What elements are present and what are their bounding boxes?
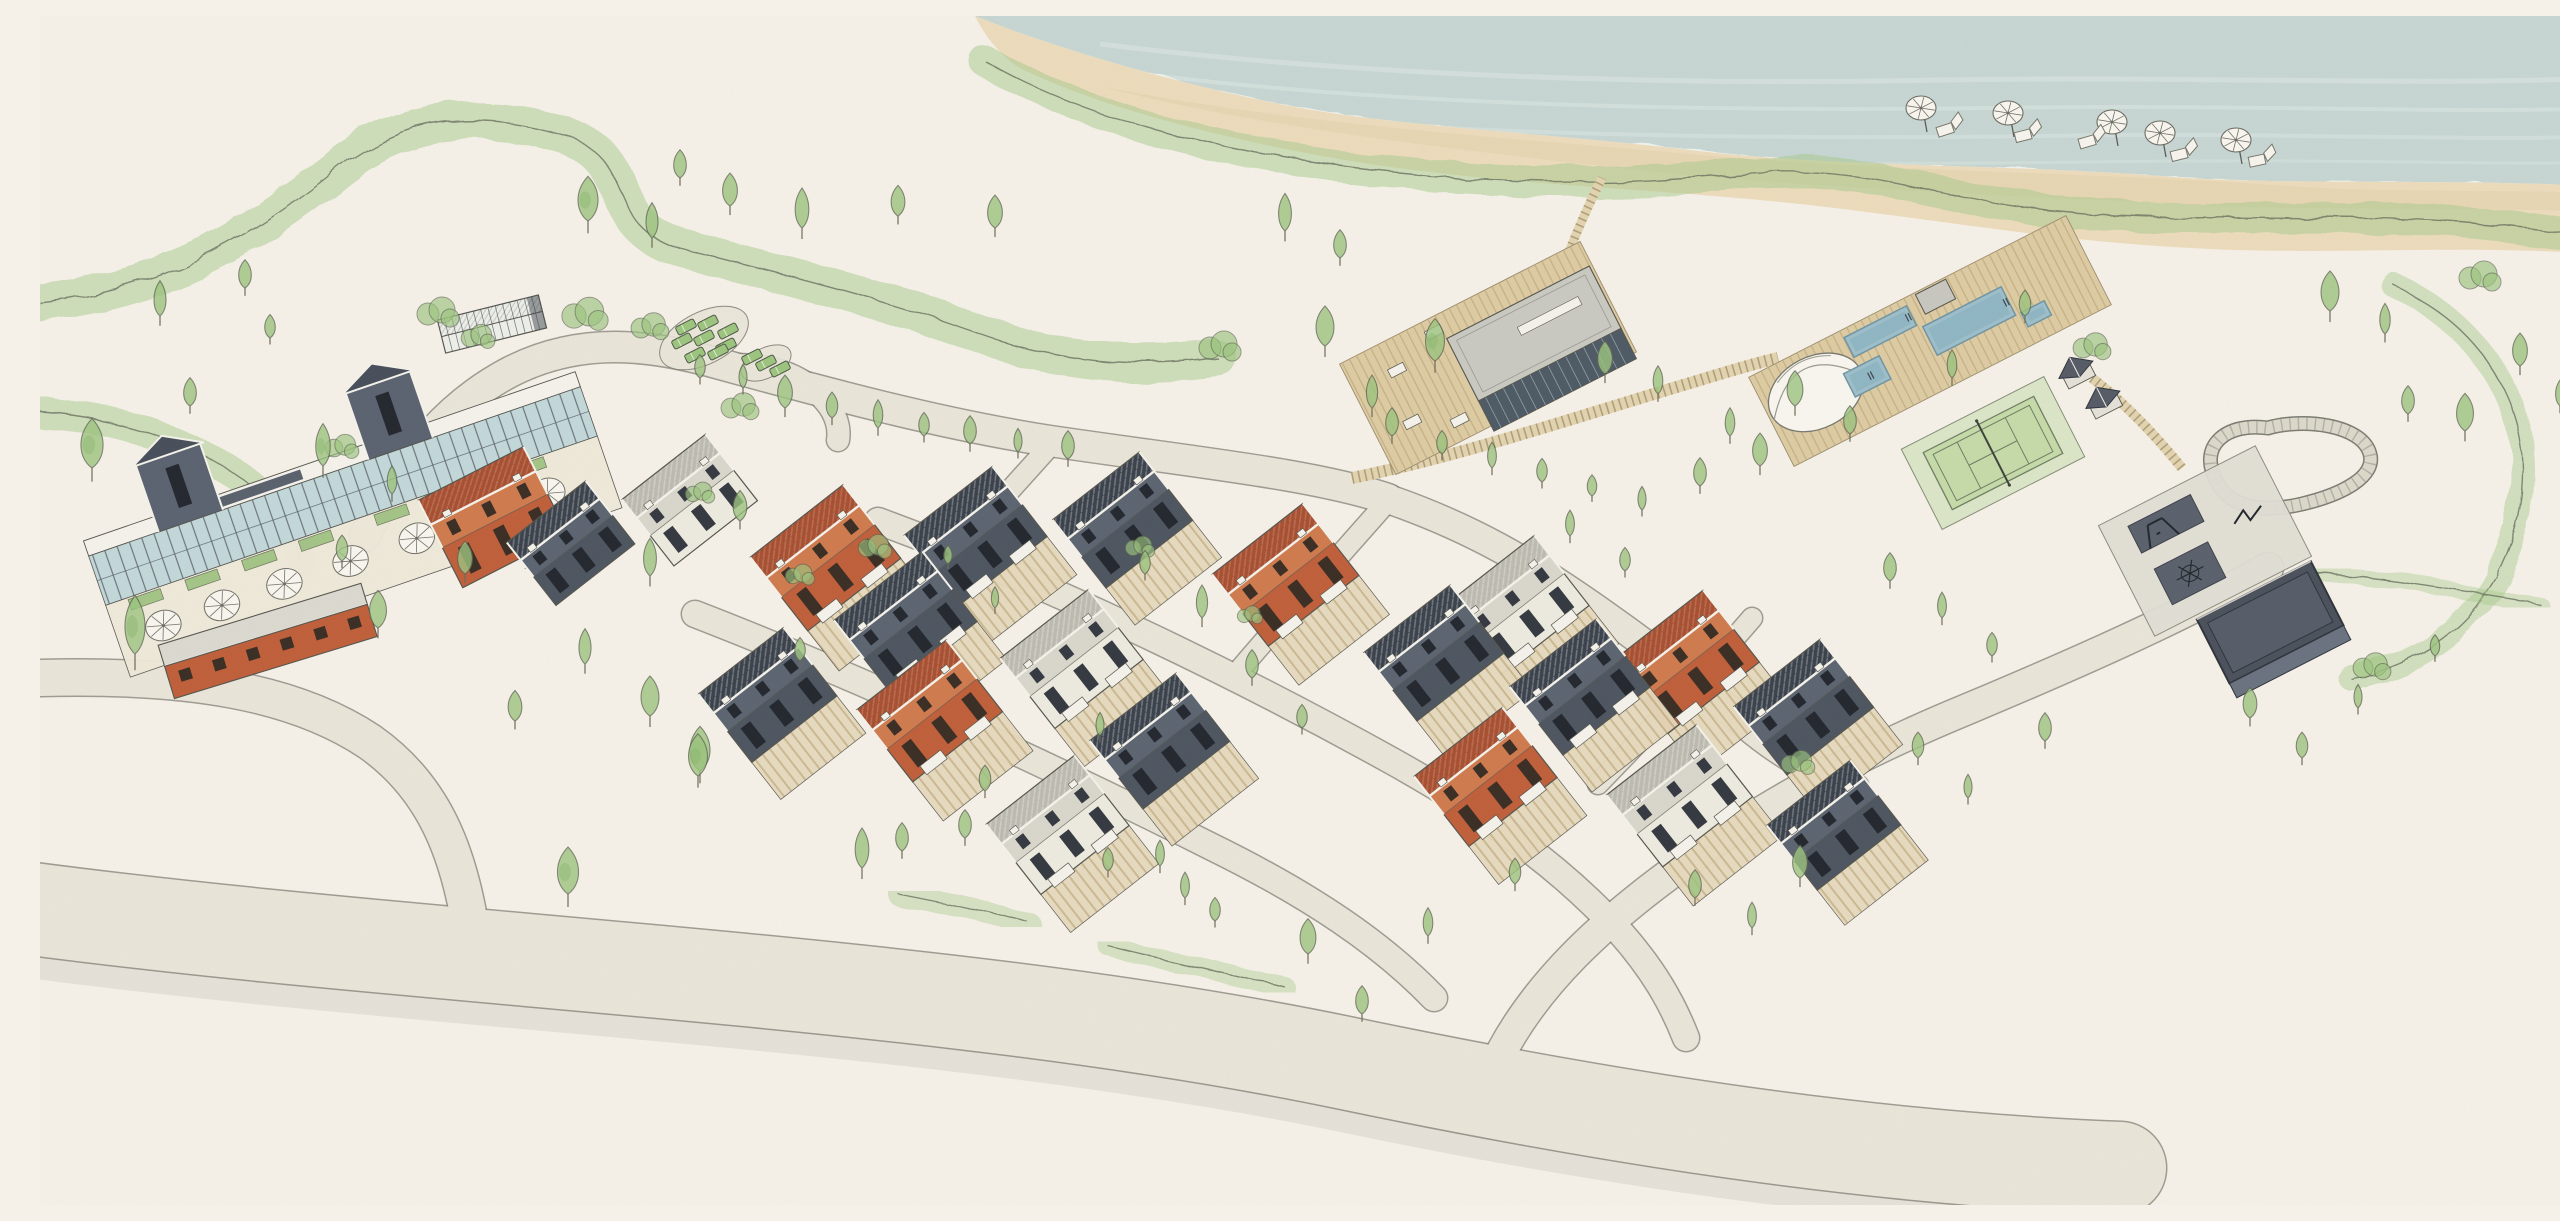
- masterplan-canvas: [40, 16, 2560, 1205]
- paper-texture: [40, 16, 2560, 1205]
- masterplan-figure: [40, 16, 2560, 1205]
